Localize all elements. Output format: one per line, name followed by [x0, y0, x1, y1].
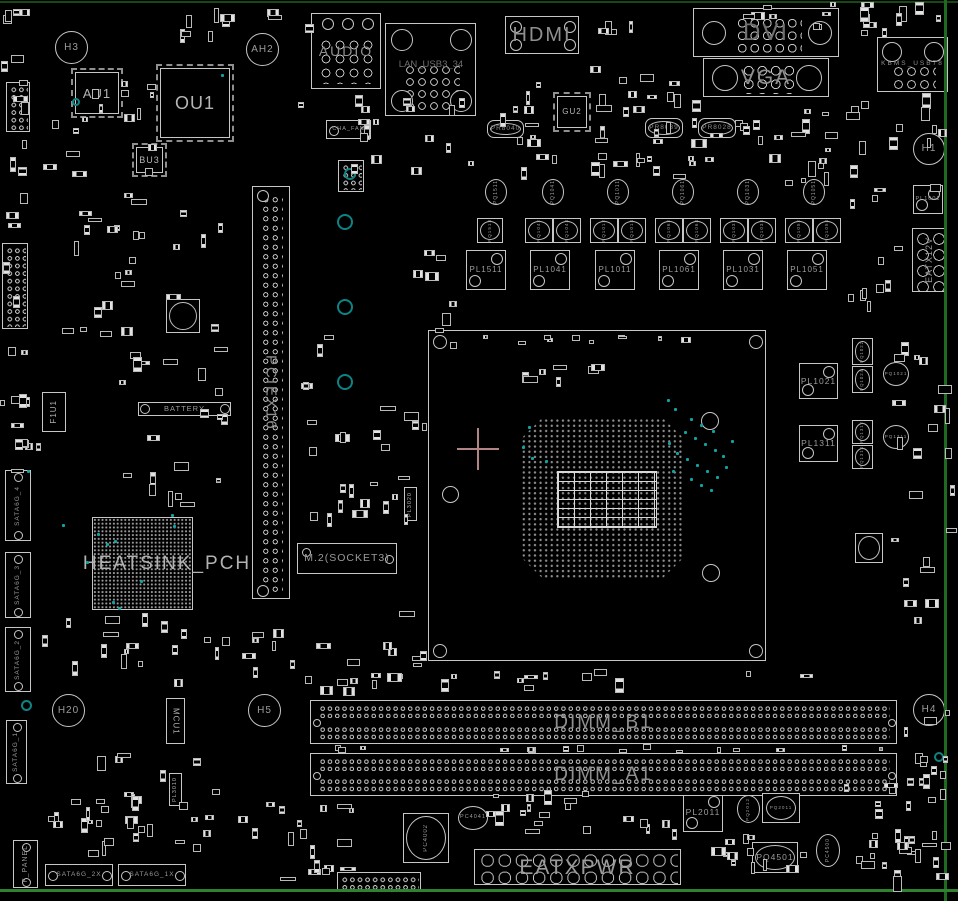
- passive-component: [371, 155, 383, 164]
- passive-component: [517, 137, 523, 145]
- passive-component: [102, 301, 112, 310]
- passive-component: [82, 117, 88, 123]
- passive-component: [425, 272, 439, 281]
- via-dot: [522, 446, 525, 449]
- passive-component: [884, 783, 898, 789]
- passive-component: [340, 867, 356, 872]
- label-pl1021: PL1021: [801, 377, 836, 386]
- passive-component: [572, 335, 580, 341]
- passive-component: [842, 745, 847, 751]
- passive-component: [518, 341, 526, 345]
- passive-component: [801, 178, 807, 183]
- passive-component: [96, 799, 104, 804]
- hole-ah2: AH2: [246, 33, 279, 66]
- passive-component: [300, 829, 308, 838]
- passive-component: [938, 129, 947, 137]
- slot-dimm-a1: DIMM_A1: [310, 753, 897, 796]
- label-hole-h3: H3: [64, 43, 79, 53]
- passive-component: [350, 678, 358, 684]
- via-dot: [528, 426, 531, 429]
- conn-kbms-usb78: KBMS_USB78: [877, 37, 948, 92]
- hole-h20: H20: [52, 694, 85, 727]
- passive-component: [288, 832, 294, 846]
- label-slot-dimm-a1: DIMM_A1: [554, 765, 652, 784]
- passive-component: [909, 491, 923, 499]
- passive-component: [539, 812, 550, 818]
- pq1032: PQ1032: [720, 218, 748, 243]
- label-pl1001: PL1001: [916, 197, 941, 203]
- hole-h5: H5: [248, 694, 281, 727]
- passive-component: [147, 824, 153, 837]
- chip-ou1: OU1: [160, 68, 230, 138]
- passive-component: [338, 747, 347, 753]
- passive-component: [647, 156, 652, 162]
- passive-component: [88, 218, 103, 222]
- passive-component: [142, 613, 148, 627]
- passive-component: [150, 92, 154, 98]
- label-conn-sata6g-1x: SATA6G_1X: [129, 872, 174, 879]
- pl1511: PL1511: [466, 250, 506, 290]
- mounting-hole: [21, 700, 32, 711]
- passive-component: [619, 77, 627, 83]
- via-dot: [97, 533, 100, 536]
- passive-component: [324, 335, 334, 339]
- passive-component: [524, 685, 534, 691]
- passive-component: [920, 567, 935, 574]
- via-dot: [27, 470, 30, 473]
- passive-component: [673, 174, 686, 179]
- passive-component: [279, 806, 285, 814]
- via-dot: [686, 458, 689, 461]
- board-edge-line: [0, 1, 958, 3]
- label-pl1311: PL1311: [801, 439, 836, 448]
- passive-component: [13, 296, 20, 307]
- passive-component: [945, 408, 950, 423]
- label-conn-sata6g-2: SATA6G_2: [15, 640, 22, 680]
- passive-component: [138, 661, 143, 667]
- passive-component: [595, 138, 608, 143]
- pq1064: PQ1064: [683, 218, 711, 243]
- passive-component: [914, 617, 922, 624]
- passive-component: [8, 347, 17, 356]
- passive-component: [360, 746, 366, 750]
- passive-component: [297, 820, 302, 826]
- passive-component: [139, 232, 145, 238]
- passive-component: [743, 126, 751, 135]
- passive-component: [556, 377, 562, 388]
- slot-dimm-b1: DIMM_B1: [310, 700, 897, 744]
- passive-component: [945, 448, 952, 459]
- label-pc4002: PC4002: [423, 824, 429, 852]
- passive-component: [186, 15, 192, 28]
- passive-component: [392, 494, 399, 501]
- pq1311: PQ1311: [883, 425, 909, 449]
- passive-component: [596, 105, 612, 112]
- label-pl1031: PL1031: [726, 266, 760, 274]
- passive-component: [8, 223, 21, 228]
- pq1042: PQ1042: [525, 218, 553, 243]
- passive-component: [383, 501, 390, 514]
- label-chip-bu3: BU3: [139, 156, 160, 165]
- label-conn-dvi: DVI: [743, 21, 789, 45]
- conn-f-panel: F_PANEL: [13, 840, 38, 888]
- passive-component: [351, 164, 358, 174]
- passive-component: [758, 136, 763, 145]
- passive-component: [216, 478, 221, 483]
- pq1062: PQ1062: [655, 218, 683, 243]
- passive-component: [594, 669, 607, 676]
- via-dot: [731, 440, 734, 443]
- label-chip-f1u1: F1U1: [50, 400, 58, 424]
- passive-component: [468, 161, 474, 165]
- passive-component: [217, 414, 222, 420]
- pq1034: PQ1034: [748, 218, 776, 243]
- passive-component: [591, 364, 605, 371]
- passive-component: [878, 257, 885, 265]
- passive-component: [637, 158, 645, 163]
- pq1314: PQ1314: [852, 445, 873, 469]
- passive-component: [347, 659, 360, 665]
- label-chip-ou1: OU1: [175, 94, 215, 112]
- passive-component: [619, 749, 626, 753]
- passive-component: [861, 2, 874, 8]
- passive-component: [875, 809, 883, 819]
- via-dot: [112, 601, 115, 604]
- passive-component: [544, 790, 552, 805]
- passive-component: [124, 114, 135, 123]
- label-pr8040: PR8040: [491, 126, 521, 133]
- passive-component: [950, 485, 955, 495]
- passive-component: [825, 132, 838, 139]
- conn-audio: AUDIO: [311, 13, 381, 89]
- passive-component: [867, 301, 872, 312]
- label-pq2012: PQ2012: [746, 798, 751, 821]
- pl1031: PL1031: [723, 250, 763, 290]
- label-pq1021: PQ1021: [885, 372, 908, 377]
- pl1311: PL1311: [799, 425, 838, 462]
- passive-component: [200, 409, 209, 418]
- passive-component: [897, 437, 903, 450]
- passive-component: [181, 629, 187, 639]
- label-conn-vga: VGA: [741, 67, 791, 88]
- passive-component: [751, 862, 755, 874]
- passive-component: [43, 164, 57, 170]
- passive-component: [591, 162, 599, 176]
- via-dot: [106, 543, 109, 546]
- label-hole-h5: H5: [257, 706, 272, 716]
- passive-component: [412, 421, 419, 429]
- passive-component: [483, 335, 488, 339]
- passive-component: [174, 679, 183, 686]
- passive-component: [96, 820, 101, 827]
- passive-component: [422, 423, 428, 432]
- passive-component: [861, 861, 875, 869]
- passive-component: [126, 643, 139, 649]
- passive-component: [317, 344, 323, 357]
- passive-component: [577, 745, 584, 752]
- label-slot-dimm-b1: DIMM_B1: [554, 713, 652, 732]
- passive-component: [191, 817, 198, 823]
- passive-component: [544, 335, 551, 340]
- passive-component: [52, 120, 60, 129]
- passive-component: [413, 663, 421, 667]
- via-dot: [710, 489, 713, 492]
- passive-component: [327, 513, 332, 527]
- passive-component: [525, 829, 539, 834]
- passive-component: [163, 359, 177, 365]
- pc4002: PC4002: [406, 816, 446, 860]
- passive-component: [925, 599, 940, 608]
- label-pl1051: PL1051: [790, 266, 824, 274]
- passive-component: [272, 641, 276, 651]
- passive-component: [940, 789, 945, 800]
- label-pq1511: PQ1511: [494, 180, 499, 204]
- passive-component: [404, 514, 408, 525]
- via-dot: [714, 449, 717, 452]
- label-pq4501: PQ4501: [756, 853, 793, 862]
- label-heatsink-pch: HEATSINK_PCH: [76, 553, 258, 575]
- conn-eatx12v: EATX12V: [912, 228, 947, 292]
- passive-component: [692, 118, 698, 128]
- passive-component: [222, 637, 230, 646]
- label-pq1031: PQ1031: [746, 180, 751, 204]
- passive-component: [214, 8, 220, 23]
- header-left-b: [2, 243, 28, 329]
- passive-component: [133, 357, 142, 372]
- passive-component: [936, 873, 948, 879]
- passive-component: [919, 357, 927, 365]
- passive-component: [352, 510, 367, 517]
- passive-component: [383, 642, 392, 650]
- label-pq1054: PQ1054: [825, 219, 830, 242]
- label-conn-sata6g-4: SATA6G_4: [15, 486, 22, 526]
- passive-component: [131, 199, 147, 204]
- passive-component: [875, 801, 881, 807]
- conn-sata6g-2x: SATA6G_2X: [45, 864, 113, 886]
- passive-component: [769, 154, 781, 162]
- passive-component: [273, 629, 284, 638]
- label-pq1513: PQ1513: [488, 219, 493, 242]
- label-pq1064: PQ1064: [695, 219, 700, 242]
- passive-component: [527, 804, 531, 812]
- passive-component: [894, 246, 904, 251]
- passive-component: [862, 288, 867, 299]
- passive-component: [205, 815, 214, 820]
- passive-component: [290, 660, 295, 668]
- via-dot: [712, 430, 715, 433]
- passive-component: [727, 852, 738, 860]
- passive-component: [897, 842, 908, 850]
- passive-component: [844, 784, 849, 792]
- passive-component: [889, 137, 898, 150]
- via-dot: [62, 524, 65, 527]
- chip-gu2: GU2: [557, 96, 587, 128]
- passive-component: [932, 125, 938, 134]
- mounting-hole: [337, 299, 353, 315]
- passive-component: [800, 852, 807, 858]
- passive-component: [825, 148, 831, 152]
- passive-component: [672, 829, 677, 840]
- passive-component: [252, 828, 258, 839]
- passive-component: [62, 328, 73, 334]
- motherboard-diagram: H3AH2H1H20H5H4AU1OU1BU3GU2MCU1F1U1PL3020…: [0, 0, 958, 901]
- passive-component: [446, 143, 451, 153]
- via-dot: [700, 484, 703, 487]
- label-pq1044: PQ1044: [565, 219, 570, 242]
- passive-component: [500, 748, 509, 752]
- passive-component: [117, 753, 131, 758]
- passive-component: [904, 600, 918, 606]
- passive-component: [198, 368, 206, 381]
- passive-component: [6, 212, 18, 219]
- passive-component: [553, 365, 568, 369]
- passive-component: [398, 476, 411, 481]
- label-conn-hdmi: HDMI: [512, 25, 571, 45]
- passive-component: [404, 412, 419, 421]
- passive-component: [268, 15, 282, 20]
- passive-component: [101, 644, 107, 658]
- passive-component: [3, 262, 10, 275]
- passive-component: [946, 528, 957, 533]
- passive-component: [10, 157, 16, 172]
- passive-component: [589, 340, 595, 345]
- passive-component: [717, 747, 721, 753]
- passive-component: [127, 817, 133, 829]
- passive-component: [129, 257, 136, 264]
- via-dot: [118, 607, 121, 610]
- passive-component: [743, 14, 755, 20]
- passive-component: [442, 313, 451, 326]
- pq1513: PQ1513: [477, 218, 503, 243]
- passive-component: [94, 307, 102, 318]
- passive-component: [193, 758, 202, 767]
- passive-component: [733, 748, 740, 752]
- passive-component: [370, 482, 377, 486]
- label-pq1032: PQ1032: [732, 219, 737, 242]
- label-pl2011: PL2011: [686, 808, 721, 817]
- passive-component: [298, 102, 304, 108]
- passive-component: [536, 82, 541, 88]
- label-conn-sata6g-1: SATA6G_1: [13, 732, 20, 772]
- via-dot: [140, 580, 143, 583]
- passive-component: [371, 673, 381, 678]
- passive-component: [133, 833, 139, 841]
- passive-component: [667, 92, 674, 102]
- label-conn-eatxpwr: EATXPWR: [519, 857, 635, 878]
- passive-component: [36, 443, 41, 452]
- pr8039: PR8039: [645, 118, 683, 138]
- passive-component: [11, 469, 24, 474]
- passive-component: [895, 829, 901, 844]
- passive-component: [349, 484, 354, 498]
- passive-component: [870, 853, 876, 858]
- passive-component: [753, 120, 760, 130]
- passive-component: [74, 241, 79, 257]
- label-conn-eatx12v: EATX12V: [925, 237, 934, 283]
- passive-component: [800, 674, 813, 678]
- label-pr8028: PR8028: [702, 125, 732, 132]
- passive-component: [913, 448, 922, 459]
- passive-component: [105, 616, 119, 624]
- passive-component: [161, 621, 168, 633]
- pq1022: PQ1022: [852, 338, 873, 365]
- passive-component: [928, 797, 936, 802]
- passive-component: [22, 140, 27, 148]
- passive-component: [214, 347, 227, 352]
- conn-sata6g-3: SATA6G_3: [5, 552, 31, 618]
- passive-component: [316, 643, 331, 650]
- pq1052: PQ1052: [785, 218, 813, 243]
- passive-component: [643, 744, 652, 749]
- passive-component: [121, 281, 136, 287]
- passive-component: [160, 770, 167, 782]
- passive-component: [88, 850, 98, 857]
- via-dot: [716, 476, 719, 479]
- via-dot: [668, 442, 671, 445]
- label-pc4041: PC4041: [460, 815, 486, 821]
- label-pq1024: PQ1024: [860, 369, 864, 391]
- via-dot: [704, 443, 707, 446]
- via-dot: [725, 466, 728, 469]
- passive-component: [373, 430, 381, 440]
- passive-component: [876, 284, 884, 293]
- slot-pciex16: PCIEX16: [252, 186, 290, 599]
- passive-component: [104, 838, 114, 847]
- passive-component: [115, 272, 121, 279]
- passive-component: [340, 484, 346, 493]
- pl1041: PL1041: [530, 250, 570, 290]
- passive-component: [920, 756, 928, 763]
- passive-component: [526, 794, 535, 802]
- passive-component: [174, 462, 190, 470]
- passive-component: [337, 804, 352, 810]
- passive-component: [494, 671, 500, 679]
- passive-component: [168, 491, 173, 507]
- passive-component: [147, 84, 156, 90]
- passive-component: [360, 499, 369, 507]
- passive-component: [893, 876, 902, 892]
- via-dot: [696, 464, 699, 467]
- passive-component: [72, 661, 78, 677]
- via-dot: [86, 561, 89, 564]
- passive-component: [121, 81, 128, 87]
- passive-component: [666, 122, 671, 134]
- passive-component: [808, 161, 816, 177]
- passive-component: [320, 805, 327, 812]
- via-dot: [690, 418, 693, 421]
- passive-component: [936, 15, 941, 22]
- passive-component: [786, 865, 799, 873]
- passive-component: [201, 234, 206, 248]
- via-dot: [694, 437, 697, 440]
- passive-component: [563, 746, 569, 752]
- label-pl1511: PL1511: [470, 266, 503, 274]
- via-dot: [722, 455, 725, 458]
- passive-component: [360, 133, 368, 143]
- passive-component: [564, 798, 578, 804]
- label-lan-usb3: LAN_USB3_34: [389, 58, 473, 70]
- passive-component: [523, 376, 538, 384]
- passive-component: [355, 95, 363, 106]
- label-pq1312: PQ1312: [860, 421, 864, 443]
- label-conn-f-panel: F_PANEL: [22, 845, 29, 883]
- passive-component: [305, 676, 312, 685]
- passive-component: [662, 820, 671, 828]
- passive-component: [552, 155, 557, 164]
- passive-component: [872, 833, 878, 839]
- passive-component: [310, 512, 318, 521]
- passive-component: [403, 98, 411, 106]
